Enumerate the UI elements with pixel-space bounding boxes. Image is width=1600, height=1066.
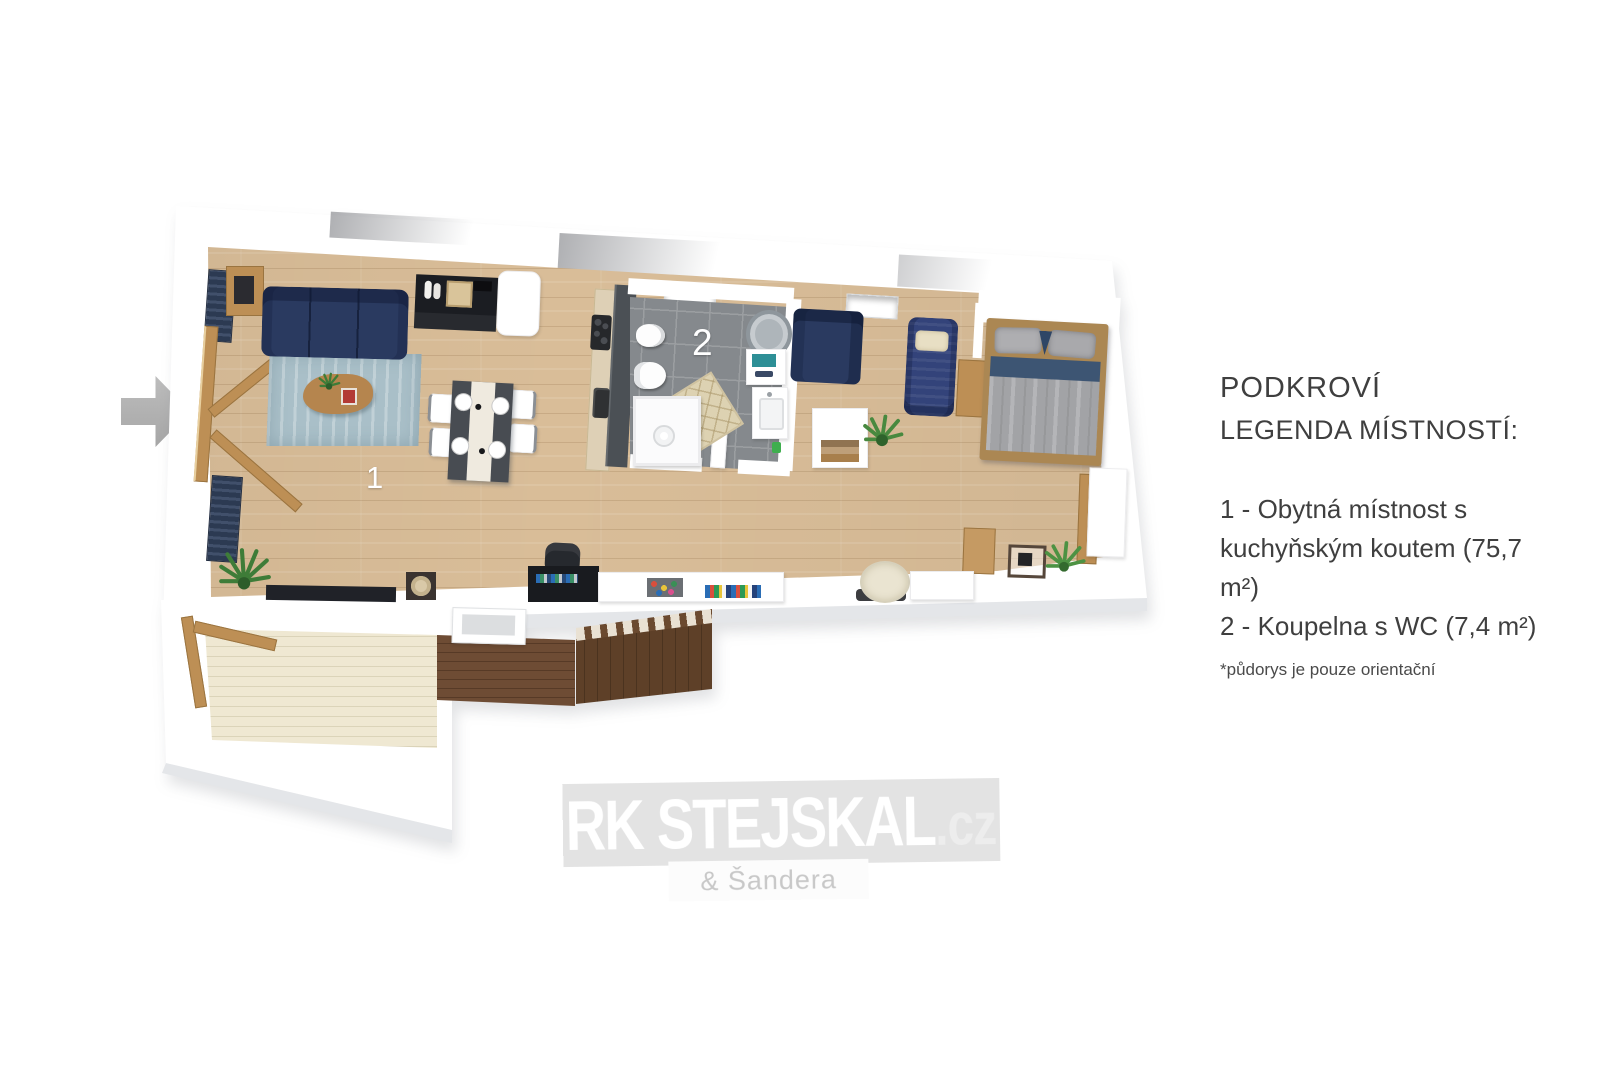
washbasin <box>759 398 784 430</box>
shower-drain <box>653 425 675 447</box>
armchair <box>790 308 864 385</box>
watermark-tld: .cz <box>935 791 997 859</box>
legend-panel: PODKROVÍ LEGENDA MÍSTNOSTÍ: 1 - Obytná m… <box>1220 372 1560 697</box>
watermark-brand: RK STEJSKAL.cz <box>565 779 997 866</box>
dining-chair <box>508 423 537 453</box>
chaise-lounge <box>903 317 958 417</box>
bed-blanket <box>986 376 1100 456</box>
storage-basket <box>226 266 264 316</box>
tv-console <box>266 585 396 602</box>
legend-disclaimer: *půdorys je pouze orientační <box>1220 660 1560 680</box>
watermark-subtitle: & Šandera <box>700 864 837 897</box>
room-number-living: 1 <box>366 460 383 496</box>
desk-books <box>536 574 578 583</box>
bathroom-wall-bottom <box>738 460 791 477</box>
watermark-band: RK STEJSKAL.cz <box>562 778 1000 867</box>
sink-vanity <box>752 387 788 439</box>
pouf-stool <box>860 561 910 603</box>
book-row <box>705 585 761 598</box>
potted-plant-icon <box>316 372 342 398</box>
kitchen-sink <box>592 388 610 419</box>
legend-item-2: 2 - Koupelna s WC (7,4 m²) <box>1220 607 1560 646</box>
burner <box>594 331 600 337</box>
sofa <box>261 286 409 360</box>
double-bed <box>979 318 1108 466</box>
potted-plant-icon <box>860 410 904 462</box>
chaise-pillow <box>915 330 949 352</box>
room-number-bathroom: 2 <box>692 322 713 364</box>
vase-decor <box>424 281 432 299</box>
drawer-insert <box>821 440 859 462</box>
towel-stack <box>752 354 776 367</box>
decor-bowl <box>411 576 431 596</box>
legend-item-1-line-1: 1 - Obytná místnost s <box>1220 490 1560 529</box>
wicker-basket <box>446 281 473 308</box>
office-desk <box>528 566 599 602</box>
place-setting-plate <box>488 440 507 459</box>
chimney-column <box>496 270 541 336</box>
burner <box>602 323 608 329</box>
pinboard-decor <box>647 578 683 597</box>
legend-subtitle: LEGENDA MÍSTNOSTÍ: <box>1220 415 1560 446</box>
toilet <box>634 362 666 389</box>
pillow <box>994 327 1041 354</box>
pillow <box>1047 329 1096 359</box>
bidet <box>636 324 665 347</box>
dining-table <box>447 380 513 482</box>
watermark: RK STEJSKAL.cz & Šandera <box>562 773 1004 899</box>
legend-item-1-line-2: kuchyňským koutem (75,7 m²) <box>1220 529 1560 607</box>
potted-plant-icon <box>1040 538 1088 584</box>
burner <box>600 337 607 344</box>
potted-plant-icon <box>216 546 272 604</box>
electronics-decor <box>474 281 492 292</box>
bedroom-desk <box>962 527 996 574</box>
decor-planter <box>406 572 436 600</box>
cooktop <box>590 315 612 351</box>
faucet <box>767 392 772 397</box>
roof-window-glass <box>462 614 516 635</box>
plan-title: PODKROVÍ <box>1220 372 1560 405</box>
watermark-sub-band: & Šandera <box>668 859 869 902</box>
burner <box>594 319 601 326</box>
roof-window-frame <box>452 607 527 645</box>
low-shelf <box>598 572 784 602</box>
shower-tray <box>633 396 701 466</box>
wardrobe <box>1086 467 1127 557</box>
bathroom-bin <box>772 442 781 453</box>
bathroom-cabinet <box>746 349 786 385</box>
low-shelf-small <box>910 571 974 600</box>
sideboard <box>414 274 498 332</box>
table-decor-book <box>341 388 357 405</box>
place-setting-plate <box>491 397 510 416</box>
floorplan-page: 1 2 <box>0 0 1600 1066</box>
toiletry-decor <box>755 371 773 377</box>
basket-interior <box>234 276 254 304</box>
vase-decor <box>433 283 441 299</box>
laptop <box>1018 553 1032 566</box>
